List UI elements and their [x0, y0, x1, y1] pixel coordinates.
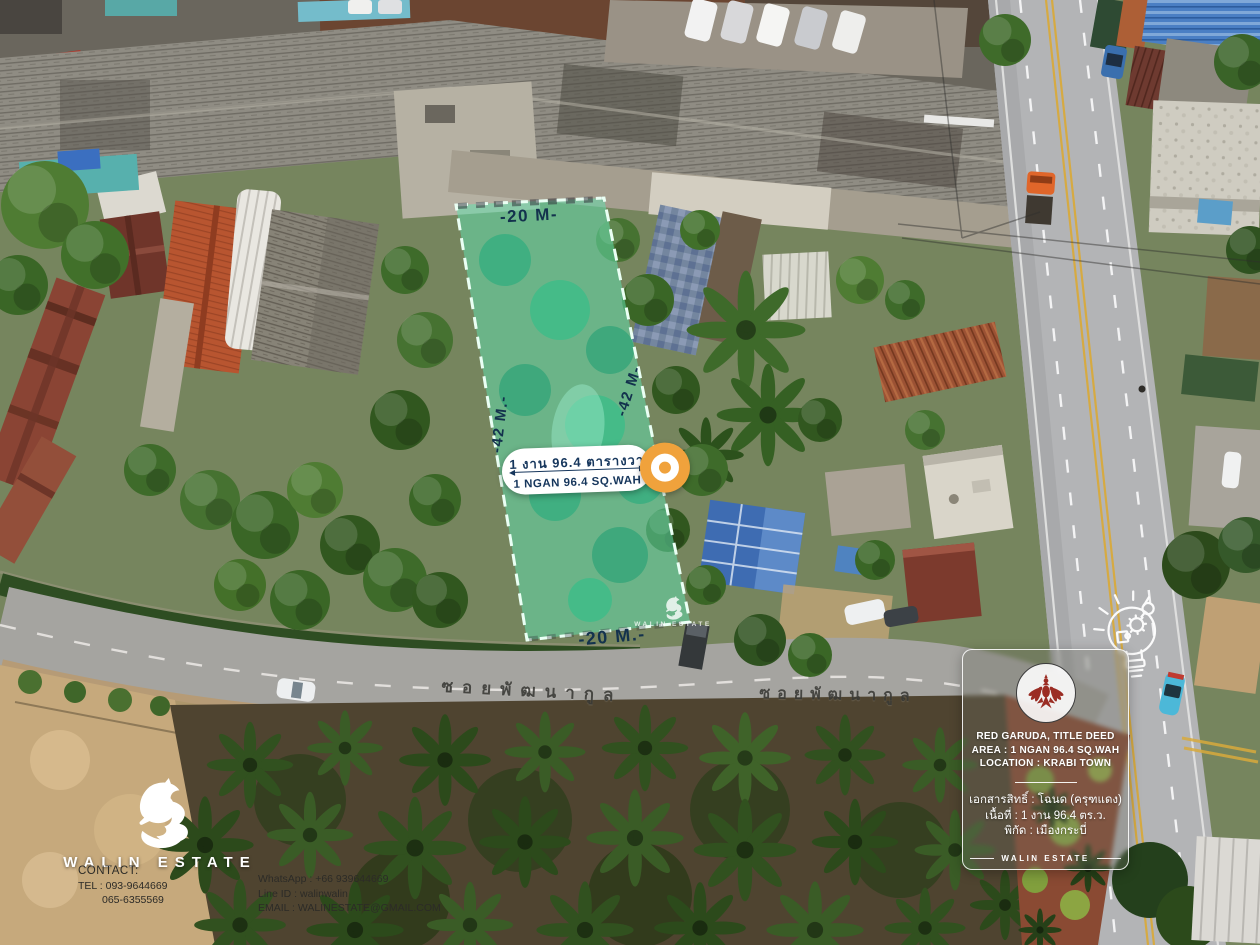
contact-block-right: WhatsApp : +66 939644669 Line ID : walin…: [258, 872, 441, 916]
walin-estate-logo-block: WALIN ESTATE: [55, 778, 265, 871]
card-title-line: RED GARUDA, TITLE DEED: [963, 730, 1128, 744]
card-location-line: LOCATION : KRABI TOWN: [963, 757, 1128, 771]
aerial-listing-image: -20 M- -42 M.- -42 M- -20 M.- 1 งาน 96.4…: [0, 0, 1260, 945]
card-area-thai-line: เนื้อที่ : 1 งาน 96.4 ตร.ว.: [963, 809, 1128, 825]
card-area-line: AREA : 1 NGAN 96.4 SQ.WAH: [963, 744, 1128, 758]
card-footer-brand: WALIN ESTATE: [1001, 854, 1089, 863]
garuda-emblem: [1016, 663, 1076, 723]
contact-whatsapp: WhatsApp : +66 939644669: [258, 872, 441, 887]
area-english-label: 1 NGAN 96.4 SQ.WAH: [502, 474, 652, 491]
truck-orange: [1024, 171, 1056, 225]
watermark-horse-icon: [658, 596, 688, 621]
contact-block-left: CONTACT: TEL : 093-9644669 065-6355569: [78, 864, 168, 908]
card-divider: [1015, 782, 1077, 784]
card-footer: WALIN ESTATE: [963, 854, 1128, 863]
contact-tel2: 065-6355569: [78, 893, 168, 908]
garuda-icon: [1025, 672, 1067, 714]
property-info-card: RED GARUDA, TITLE DEED AREA : 1 NGAN 96.…: [962, 649, 1129, 870]
contact-line-id: Line ID : walinwalin: [258, 887, 441, 902]
card-deed-thai-line: เอกสารสิทธิ์ : โฉนด (ครุฑแดง): [963, 793, 1128, 809]
road-name-right: ซอยพัฒนากูล: [759, 681, 917, 709]
motorbike: [1139, 386, 1146, 393]
walin-horse-logo-icon: [116, 778, 204, 852]
contact-email: EMAIL : WALINESTATE@GMAIL.COM: [258, 901, 441, 916]
area-badge: 1 งาน 96.4 ตารางวา 1 NGAN 96.4 SQ.WAH: [501, 441, 691, 500]
plot-watermark: WALIN ESTATE: [618, 596, 728, 628]
contact-label: CONTACT:: [78, 864, 168, 879]
contact-tel: TEL : 093-9644669: [78, 879, 168, 894]
card-location-thai-line: พิกัด : เมืองกระบี่: [963, 824, 1128, 840]
target-ring-icon: [639, 442, 691, 494]
plot-width-top-label: -20 M-: [499, 204, 558, 227]
